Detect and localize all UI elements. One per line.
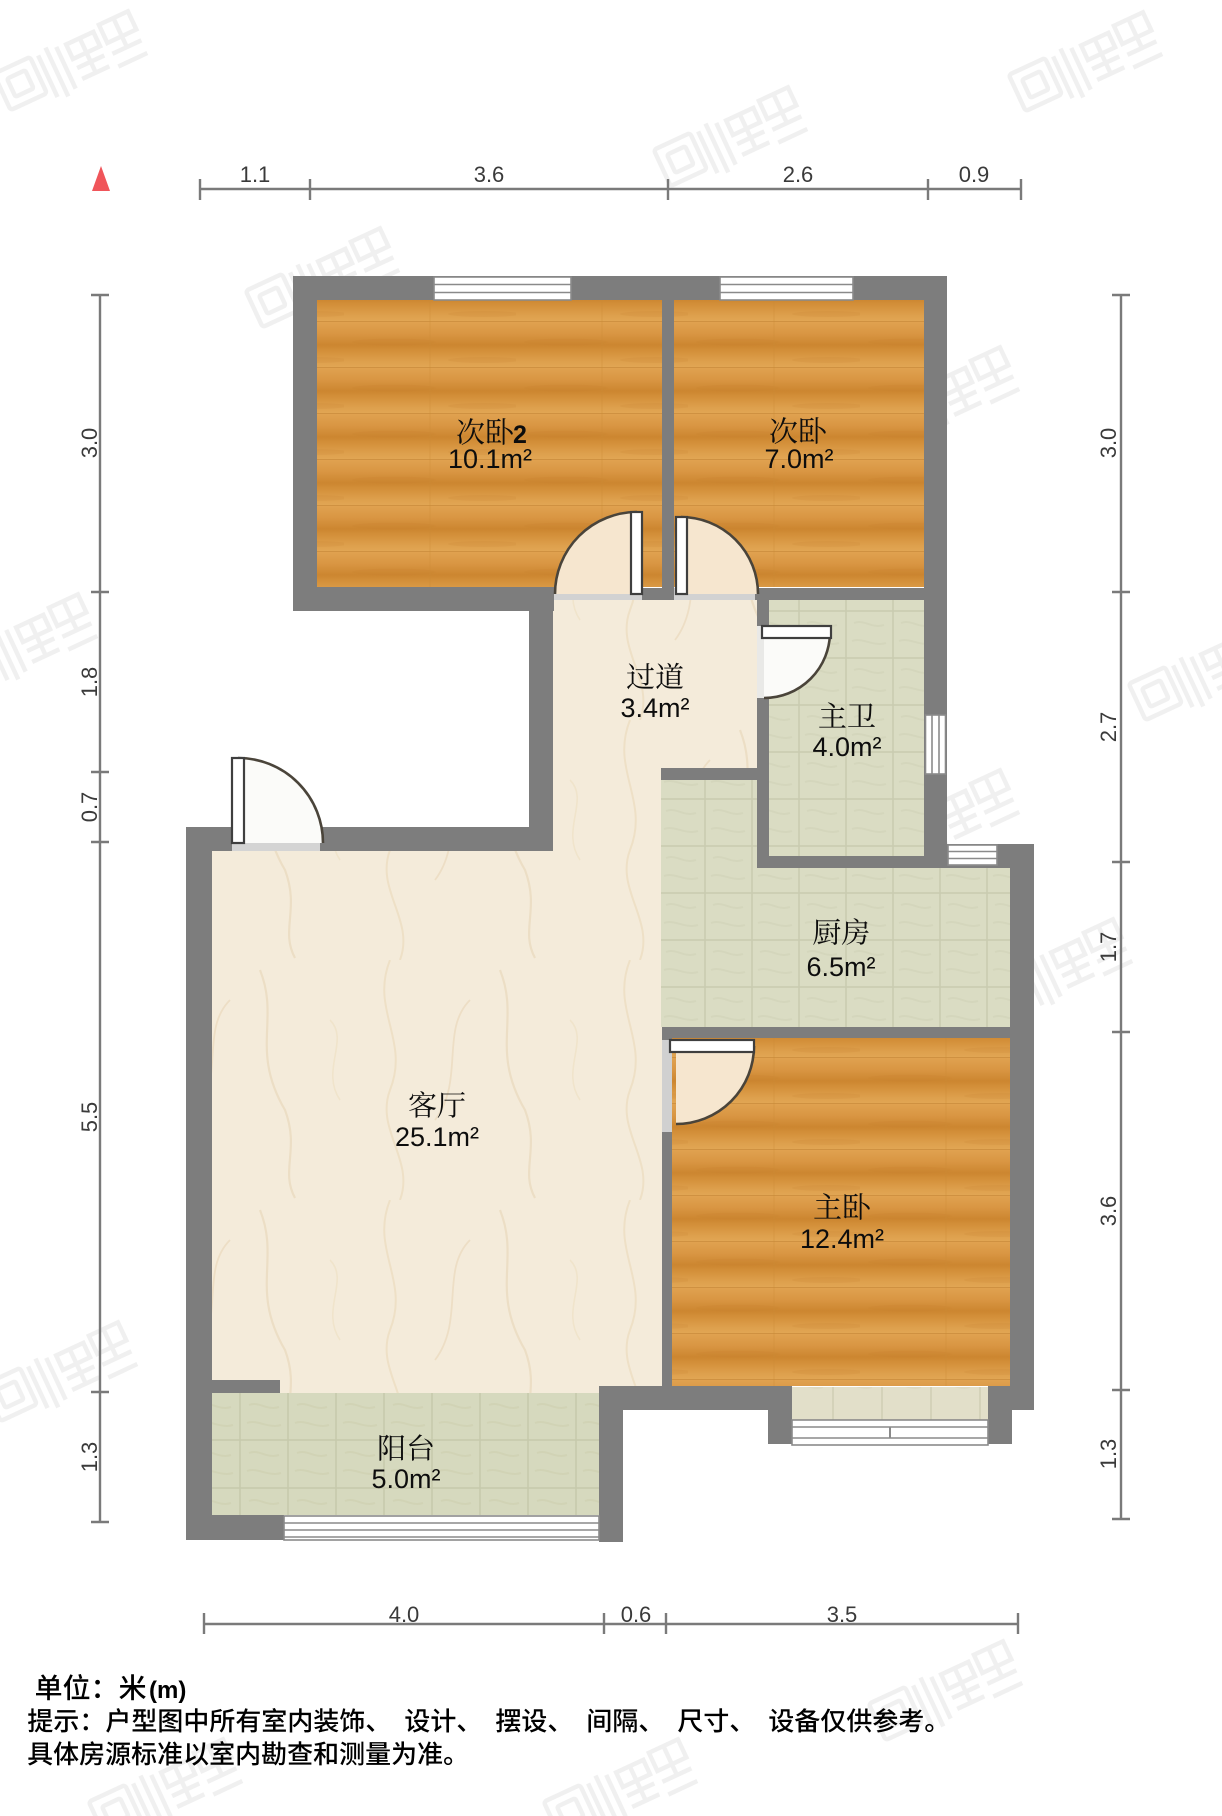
- svg-text:1.1: 1.1: [240, 162, 271, 187]
- svg-text:0.7: 0.7: [77, 792, 102, 823]
- svg-text:3.0: 3.0: [1096, 428, 1121, 459]
- svg-text:5.0m²: 5.0m²: [371, 1464, 440, 1494]
- svg-text:2.7: 2.7: [1096, 712, 1121, 743]
- svg-text:6.5m²: 6.5m²: [806, 952, 875, 982]
- svg-text:3.6: 3.6: [474, 162, 505, 187]
- svg-text:2.6: 2.6: [783, 162, 814, 187]
- svg-text:10.1m²: 10.1m²: [448, 444, 532, 474]
- svg-text:4.0m²: 4.0m²: [812, 732, 881, 762]
- svg-text:1.8: 1.8: [77, 667, 102, 698]
- svg-text:25.1m²: 25.1m²: [395, 1122, 479, 1152]
- svg-text:0.9: 0.9: [959, 162, 990, 187]
- svg-text:1.7: 1.7: [1096, 932, 1121, 963]
- svg-text:0.6: 0.6: [621, 1602, 652, 1627]
- svg-text:4.0: 4.0: [389, 1602, 420, 1627]
- svg-text:12.4m²: 12.4m²: [800, 1224, 884, 1254]
- svg-text:3.5: 3.5: [827, 1602, 858, 1627]
- svg-text:7.0m²: 7.0m²: [764, 444, 833, 474]
- svg-text:(m): (m): [149, 1677, 186, 1704]
- svg-text:5.5: 5.5: [77, 1102, 102, 1133]
- svg-text:3.4m²: 3.4m²: [620, 693, 689, 723]
- svg-text:1.3: 1.3: [77, 1442, 102, 1473]
- svg-text:3.6: 3.6: [1096, 1196, 1121, 1227]
- svg-text:1.3: 1.3: [1096, 1439, 1121, 1470]
- svg-text:3.0: 3.0: [77, 428, 102, 459]
